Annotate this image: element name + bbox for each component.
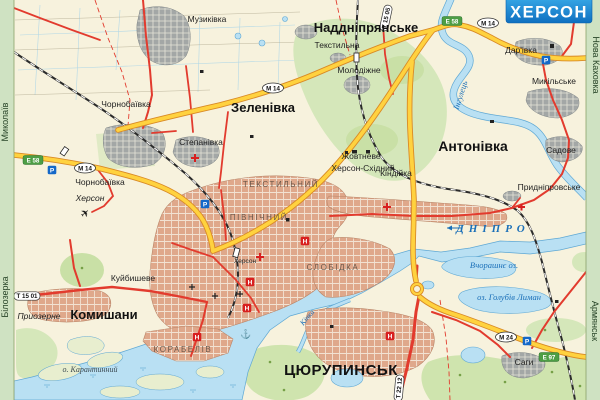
district-label-tekstylnyi: ТЕКСТИЛЬНИЙ — [243, 180, 319, 189]
anchor-icon: ⚓ — [240, 328, 251, 339]
town-label-chornobaivka: Чорнобаївка — [75, 177, 125, 187]
route-badge-m14: М 14 — [266, 85, 280, 92]
hotel-icon: Н — [303, 238, 308, 245]
city-label-zelenivka: Зеленівка — [231, 100, 296, 115]
town-label-muzykivka: Музиківка — [188, 14, 227, 24]
town-label-kindiyka: Кіндійка — [380, 168, 412, 178]
town-label-mykilske: Микільське — [532, 76, 576, 86]
island-label-karantynnyi: о. Карантинний — [63, 365, 118, 374]
left-margin-strip — [0, 0, 14, 400]
city-label-komyshany: Комишани — [70, 307, 137, 322]
hotel-icon: Н — [388, 333, 393, 340]
town-label-molodizhne: Молодіжне — [337, 65, 381, 75]
map-title: ХЕРСОН — [510, 4, 588, 22]
parking-icon: Р — [525, 338, 530, 345]
town-label-zhovtneve: Жовтневе — [341, 151, 381, 161]
town-label-stepanivka: Степанівка — [179, 137, 223, 147]
hotel-icon: Н — [245, 305, 250, 312]
map-viewport[interactable]: Р Р Р Р Н Н Н Н Н ✈ ⚓ Е 58 Е 58 Е 97 — [0, 0, 600, 400]
town-label-kuibysheve: Куйбишеве — [111, 273, 156, 283]
city-label-nadnipryanske: Наддніпрянське — [314, 20, 419, 35]
airport-label: Херсон — [75, 193, 105, 203]
city-label-antonivka: Антонівка — [438, 138, 508, 154]
town-label-chornobaivka: Чорнобаївка — [101, 99, 151, 109]
hotel-icon: Н — [248, 279, 253, 286]
station-label: Херсон — [234, 258, 257, 265]
town-label-pryozerne: Приозерне — [18, 311, 61, 321]
hotel-icon: Н — [195, 334, 200, 341]
route-badge-e58: Е 58 — [27, 157, 40, 164]
district-label-pivnichnyi: ПІВНІЧНИЙ — [230, 213, 288, 222]
district-label-korabeliv: КОРАБЕЛІВ — [154, 345, 213, 354]
route-badge-m14: М 14 — [481, 20, 495, 27]
route-badge-e58: Е 58 — [446, 18, 459, 25]
edge-label-armiansk: Армянськ — [590, 301, 600, 341]
kherson-map[interactable]: Р Р Р Р Н Н Н Н Н ✈ ⚓ Е 58 Е 58 Е 97 — [0, 0, 600, 400]
edge-label-bilozerka: Білозерка — [0, 276, 10, 317]
route-badge-m24: М 24 — [499, 334, 513, 341]
map-title-plate: ХЕРСОН — [506, 0, 592, 23]
river-label-dnipro: ДНІПРО — [455, 223, 529, 235]
parking-icon: Р — [50, 167, 55, 174]
town-label-tekstylna: Текстильна — [315, 40, 360, 50]
route-badge-t1501: Т 15 01 — [17, 293, 39, 300]
district-label-slobidka: СЛОБІДКА — [307, 263, 360, 272]
parking-icon: Р — [203, 201, 208, 208]
lake-label-vchorashnie: Вчорашнє оз. — [470, 260, 518, 270]
parking-icon: Р — [544, 57, 549, 64]
town-label-darivka: Дар'івка — [505, 45, 537, 55]
town-label-prydniprovske: Придніпровське — [518, 182, 581, 192]
town-label-sahy: Саги — [515, 357, 534, 367]
route-badge-e97: Е 97 — [543, 354, 556, 361]
lake-label-holubyi-lyman: оз. Голубів Лиман — [477, 292, 541, 302]
route-badge-m14: М 14 — [78, 165, 92, 172]
town-label-sadove: Садове — [546, 145, 576, 155]
edge-label-nova-kakhovka: Нова Каховка — [591, 36, 600, 93]
city-label-tsyurupynsk: ЦЮРУПИНСЬК — [284, 362, 398, 379]
edge-label-mykolaiv: Миколаїв — [0, 102, 10, 141]
